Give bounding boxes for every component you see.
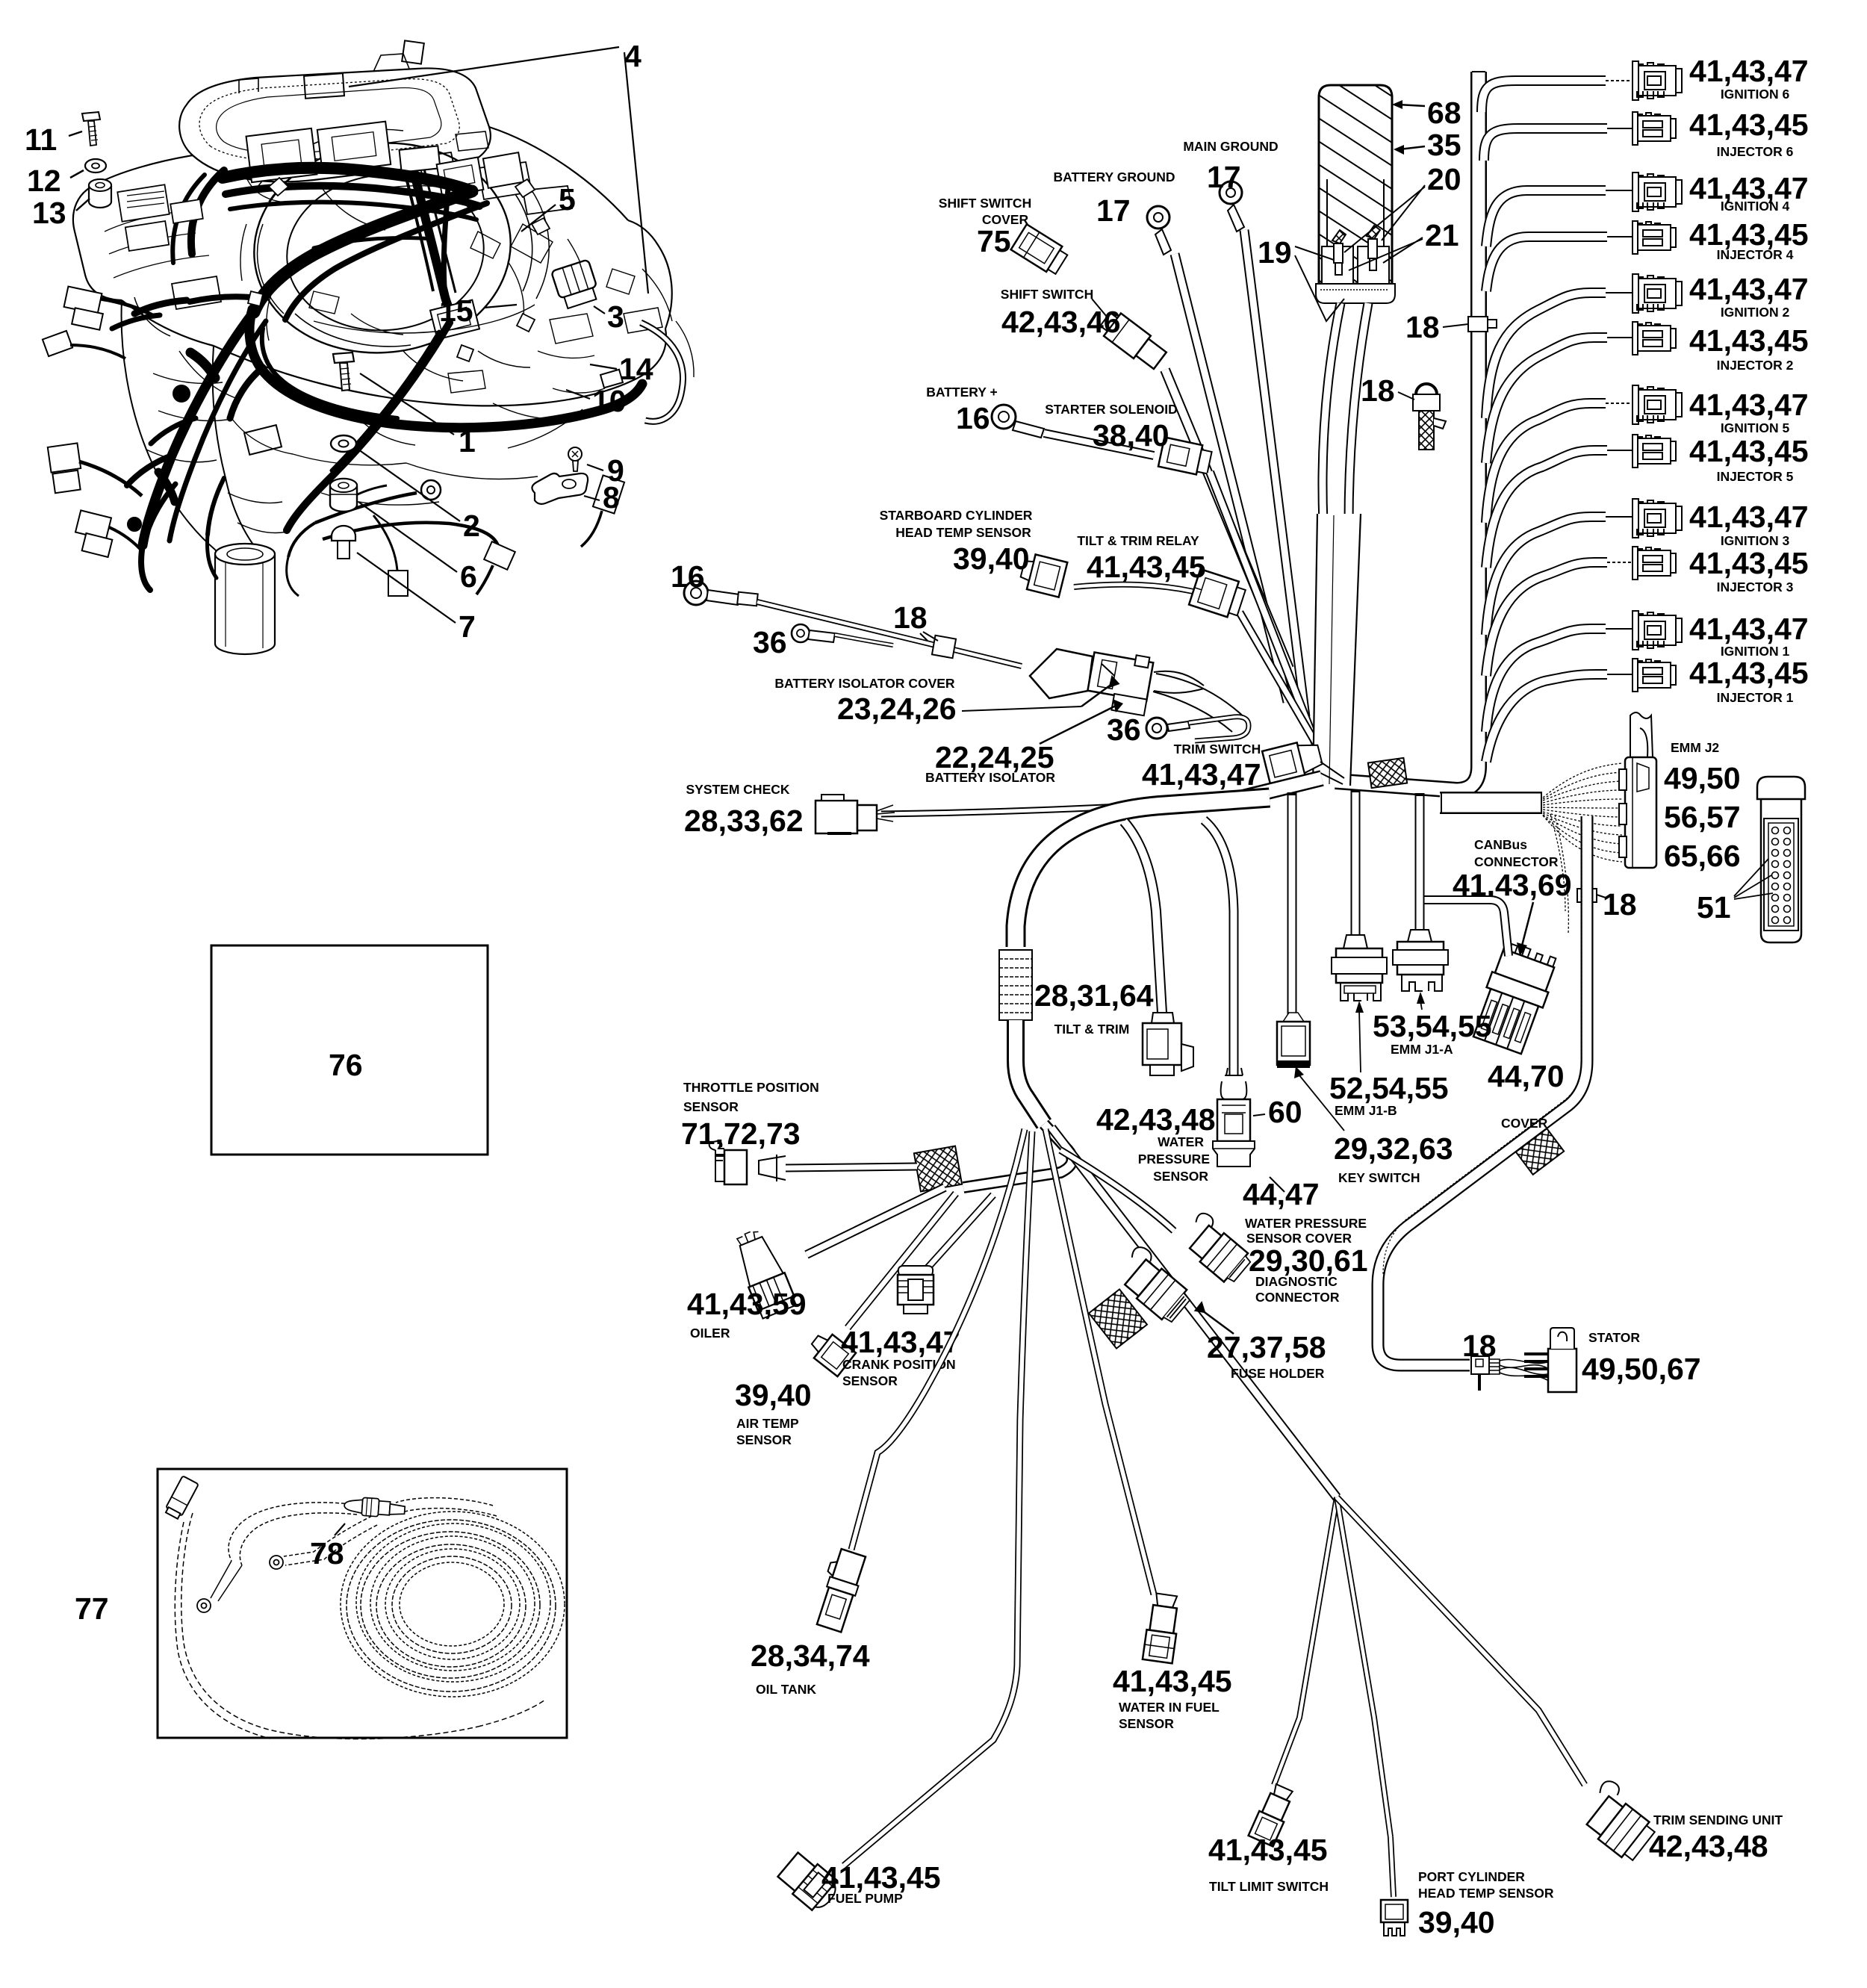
svg-text:19: 19	[1258, 235, 1292, 270]
svg-text:36: 36	[753, 625, 787, 659]
svg-text:16: 16	[956, 401, 990, 435]
svg-text:PRESSURE: PRESSURE	[1138, 1152, 1210, 1167]
svg-text:51: 51	[1697, 890, 1731, 925]
svg-text:42,43,48: 42,43,48	[1096, 1102, 1216, 1137]
svg-text:FUEL PUMP: FUEL PUMP	[827, 1891, 903, 1906]
svg-text:18: 18	[1405, 310, 1440, 344]
svg-text:42,43,48: 42,43,48	[1649, 1829, 1768, 1863]
svg-text:MAIN GROUND: MAIN GROUND	[1183, 139, 1278, 154]
svg-text:CONNECTOR: CONNECTOR	[1255, 1290, 1340, 1305]
svg-text:SENSOR: SENSOR	[842, 1373, 898, 1388]
svg-text:BATTERY GROUND: BATTERY GROUND	[1053, 170, 1175, 184]
svg-text:56,57: 56,57	[1664, 800, 1741, 834]
svg-text:5: 5	[559, 182, 576, 217]
svg-text:INJECTOR 4: INJECTOR 4	[1717, 247, 1794, 262]
svg-text:21: 21	[1425, 218, 1459, 252]
svg-text:18: 18	[893, 600, 928, 635]
svg-text:IGNITION 6: IGNITION 6	[1721, 87, 1790, 102]
svg-text:TILT & TRIM RELAY: TILT & TRIM RELAY	[1077, 533, 1199, 548]
svg-text:IGNITION 5: IGNITION 5	[1721, 420, 1790, 435]
svg-text:78: 78	[310, 1536, 344, 1571]
svg-text:41,43,47: 41,43,47	[1689, 54, 1809, 88]
svg-text:2: 2	[463, 509, 480, 543]
svg-text:STARBOARD CYLINDER: STARBOARD CYLINDER	[880, 508, 1033, 523]
svg-text:28,31,64: 28,31,64	[1034, 978, 1154, 1013]
svg-text:41,43,47: 41,43,47	[1689, 272, 1809, 306]
svg-text:41,43,45: 41,43,45	[1208, 1833, 1328, 1867]
svg-text:11: 11	[25, 122, 57, 157]
svg-text:1: 1	[459, 424, 476, 459]
svg-text:20: 20	[1427, 162, 1461, 196]
svg-text:41,43,45: 41,43,45	[1689, 546, 1809, 580]
svg-text:16: 16	[671, 559, 705, 594]
svg-text:23,24,26: 23,24,26	[837, 692, 957, 726]
svg-text:36: 36	[1107, 712, 1141, 747]
svg-text:39,40: 39,40	[953, 541, 1030, 576]
svg-text:SHIFT SWITCH: SHIFT SWITCH	[939, 196, 1031, 211]
svg-text:41,43,59: 41,43,59	[687, 1287, 807, 1321]
svg-text:THROTTLE POSITION: THROTTLE POSITION	[683, 1080, 819, 1095]
svg-text:OILER: OILER	[690, 1326, 730, 1341]
svg-text:75: 75	[977, 224, 1011, 258]
svg-text:SENSOR: SENSOR	[1153, 1169, 1208, 1184]
svg-text:29,32,63: 29,32,63	[1334, 1131, 1453, 1166]
svg-text:42,43,46: 42,43,46	[1001, 305, 1121, 339]
svg-text:41,43,45: 41,43,45	[1689, 434, 1809, 468]
svg-text:60: 60	[1268, 1095, 1302, 1129]
svg-text:17: 17	[1096, 193, 1131, 228]
svg-text:29,30,61: 29,30,61	[1249, 1243, 1368, 1278]
svg-text:41,43,47: 41,43,47	[1689, 500, 1809, 534]
svg-text:IGNITION 4: IGNITION 4	[1721, 199, 1790, 214]
svg-text:TILT & TRIM: TILT & TRIM	[1054, 1022, 1130, 1037]
svg-text:14: 14	[619, 352, 653, 386]
svg-text:41,43,45: 41,43,45	[1087, 550, 1206, 584]
svg-text:13: 13	[32, 196, 66, 230]
svg-text:41,43,45: 41,43,45	[1689, 108, 1809, 142]
svg-text:17: 17	[1207, 160, 1241, 194]
svg-text:INJECTOR 2: INJECTOR 2	[1717, 358, 1794, 373]
svg-text:41,43,45: 41,43,45	[1689, 656, 1809, 690]
svg-text:15: 15	[439, 293, 473, 328]
svg-text:IGNITION 2: IGNITION 2	[1721, 305, 1790, 320]
svg-text:49,50: 49,50	[1664, 761, 1741, 795]
svg-text:41,43,47: 41,43,47	[1689, 612, 1809, 646]
svg-text:71,72,73: 71,72,73	[681, 1116, 801, 1151]
svg-text:HEAD TEMP SENSOR: HEAD TEMP SENSOR	[895, 525, 1031, 540]
svg-text:41,43,47: 41,43,47	[1142, 757, 1261, 792]
svg-text:TRIM SENDING UNIT: TRIM SENDING UNIT	[1653, 1813, 1783, 1827]
svg-text:28,33,62: 28,33,62	[684, 804, 804, 838]
svg-text:41,43,45: 41,43,45	[1113, 1664, 1232, 1698]
svg-text:STARTER SOLENOID: STARTER SOLENOID	[1045, 402, 1178, 417]
svg-text:39,40: 39,40	[1418, 1905, 1495, 1939]
svg-text:28,34,74: 28,34,74	[751, 1638, 870, 1673]
svg-text:77: 77	[75, 1591, 109, 1626]
svg-text:18: 18	[1361, 373, 1395, 408]
svg-text:PORT CYLINDER: PORT CYLINDER	[1418, 1869, 1525, 1884]
svg-text:WATER PRESSURE: WATER PRESSURE	[1245, 1216, 1367, 1231]
svg-text:65,66: 65,66	[1664, 839, 1741, 873]
svg-text:SENSOR: SENSOR	[683, 1099, 739, 1114]
svg-text:52,54,55: 52,54,55	[1329, 1071, 1449, 1105]
svg-text:OIL TANK: OIL TANK	[756, 1682, 816, 1697]
svg-text:HEAD TEMP SENSOR: HEAD TEMP SENSOR	[1418, 1886, 1554, 1901]
svg-text:INJECTOR 1: INJECTOR 1	[1717, 690, 1794, 705]
svg-text:DIAGNOSTIC: DIAGNOSTIC	[1255, 1274, 1338, 1289]
svg-text:INJECTOR 6: INJECTOR 6	[1717, 144, 1794, 159]
svg-text:53,54,55: 53,54,55	[1373, 1009, 1492, 1043]
svg-text:41,43,45: 41,43,45	[1689, 323, 1809, 358]
svg-text:WATER IN FUEL: WATER IN FUEL	[1119, 1700, 1220, 1715]
svg-text:SYSTEM CHECK: SYSTEM CHECK	[686, 782, 789, 797]
svg-text:49,50,67: 49,50,67	[1582, 1352, 1701, 1386]
svg-text:SHIFT SWITCH: SHIFT SWITCH	[1001, 287, 1093, 302]
svg-text:BATTERY +: BATTERY +	[926, 385, 997, 400]
svg-text:6: 6	[460, 559, 477, 594]
svg-text:EMM J2: EMM J2	[1671, 740, 1719, 755]
svg-text:44,47: 44,47	[1243, 1177, 1320, 1211]
svg-text:27,37,58: 27,37,58	[1207, 1330, 1326, 1364]
svg-text:FUSE HOLDER: FUSE HOLDER	[1231, 1366, 1325, 1381]
svg-text:SENSOR: SENSOR	[736, 1432, 792, 1447]
svg-text:EMM J1-A: EMM J1-A	[1391, 1042, 1453, 1057]
svg-text:35: 35	[1427, 128, 1461, 162]
svg-text:TRIM SWITCH: TRIM SWITCH	[1174, 742, 1261, 757]
svg-text:INJECTOR 5: INJECTOR 5	[1717, 469, 1794, 484]
svg-text:STATOR: STATOR	[1588, 1330, 1640, 1345]
svg-text:KEY SWITCH: KEY SWITCH	[1338, 1170, 1420, 1185]
svg-text:39,40: 39,40	[735, 1378, 812, 1412]
svg-text:INJECTOR 3: INJECTOR 3	[1717, 580, 1794, 594]
svg-text:EMM J1-B: EMM J1-B	[1335, 1103, 1397, 1118]
svg-text:4: 4	[624, 39, 642, 73]
svg-text:BATTERY ISOLATOR: BATTERY ISOLATOR	[925, 770, 1055, 785]
svg-text:18: 18	[1603, 887, 1637, 922]
svg-text:18: 18	[1462, 1329, 1497, 1363]
svg-text:8: 8	[603, 480, 620, 515]
svg-text:TILT LIMIT SWITCH: TILT LIMIT SWITCH	[1209, 1879, 1329, 1894]
svg-text:7: 7	[459, 609, 476, 644]
svg-text:41,43,45: 41,43,45	[821, 1860, 941, 1895]
svg-text:CONNECTOR: CONNECTOR	[1474, 854, 1559, 869]
svg-text:BATTERY ISOLATOR COVER: BATTERY ISOLATOR COVER	[774, 676, 954, 691]
svg-text:WATER: WATER	[1158, 1134, 1204, 1149]
svg-text:44,70: 44,70	[1488, 1059, 1565, 1093]
svg-text:68: 68	[1427, 96, 1461, 130]
svg-text:AIR TEMP: AIR TEMP	[736, 1416, 799, 1431]
svg-text:COVER: COVER	[1501, 1116, 1548, 1131]
svg-text:12: 12	[27, 164, 61, 198]
svg-text:CANBus: CANBus	[1474, 837, 1527, 852]
svg-text:38,40: 38,40	[1093, 418, 1169, 453]
svg-text:10: 10	[592, 384, 627, 418]
svg-text:3: 3	[607, 299, 624, 334]
svg-text:76: 76	[329, 1048, 363, 1082]
svg-text:SENSOR: SENSOR	[1119, 1716, 1174, 1731]
svg-text:41,43,47: 41,43,47	[1689, 388, 1809, 422]
